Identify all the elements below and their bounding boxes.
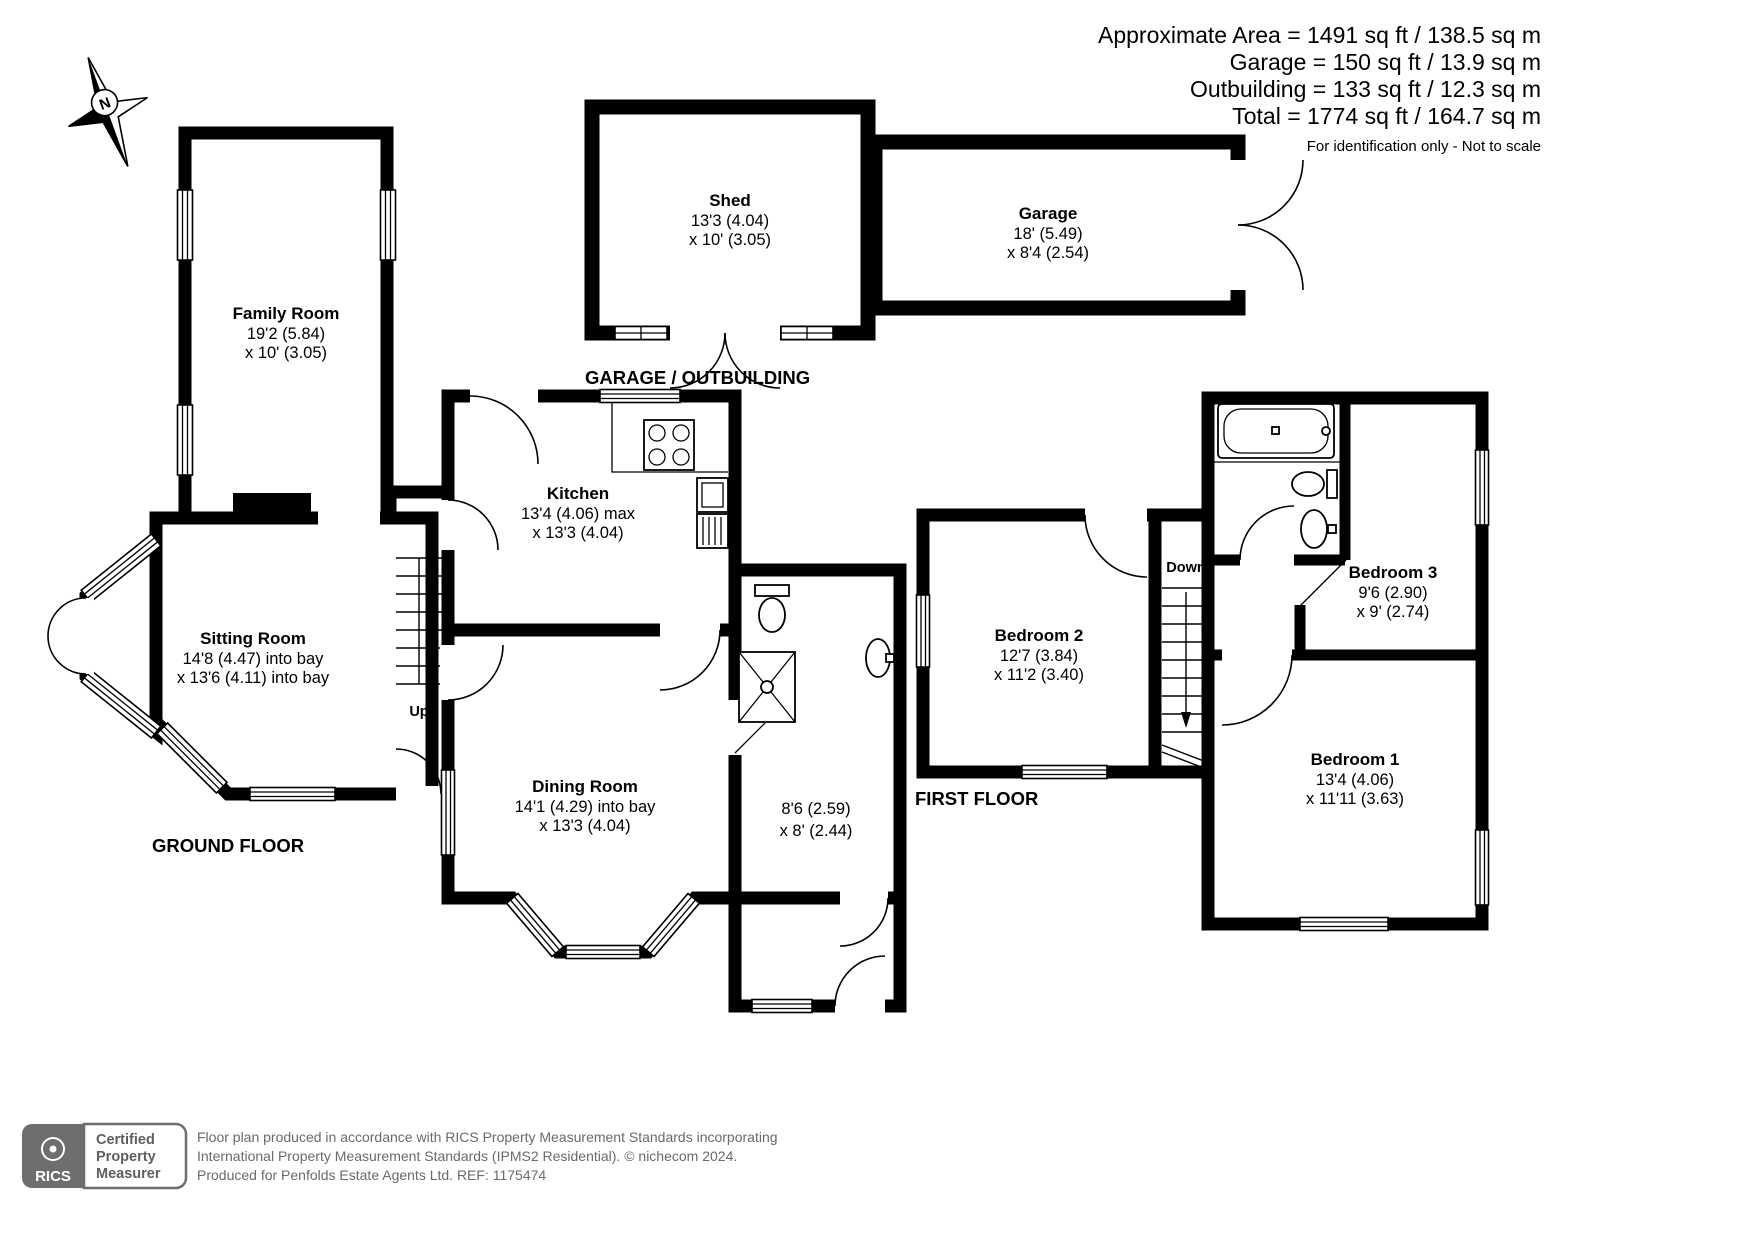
garage-dim1: 18' (5.49)	[1013, 225, 1082, 243]
sitting-bottom-window	[250, 788, 335, 801]
footer-disclaimer: Floor plan produced in accordance with R…	[197, 1129, 778, 1183]
sitting-bay-french-doors	[48, 598, 94, 674]
stairs-up-label: Up	[409, 704, 428, 720]
rics-logo: RICS	[22, 1124, 84, 1188]
bedroom1-bottom-window	[1300, 918, 1388, 931]
shed-dim2: x 10' (3.05)	[689, 231, 771, 249]
garage-name: Garage	[1019, 204, 1078, 223]
kitchen-top-window	[600, 390, 680, 403]
bathroom-gf-dim1: 8'6 (2.59)	[781, 800, 850, 818]
toilet-ff	[1292, 470, 1337, 498]
sitting-room-dim1: 14'8 (4.47) into bay	[183, 650, 324, 668]
first-floor-label: FIRST FLOOR	[915, 788, 1038, 809]
area-line-1: Approximate Area = 1491 sq ft / 138.5 sq…	[1098, 22, 1541, 48]
dining-room-name: Dining Room	[532, 777, 638, 796]
rics-logo-text: RICS	[35, 1168, 71, 1185]
shed-window-right	[781, 327, 833, 340]
bedroom3-dim1: 9'6 (2.90)	[1358, 584, 1427, 602]
kitchen-name: Kitchen	[547, 484, 609, 503]
family-room-window-right	[381, 190, 396, 260]
dining-bay-window-bottom	[566, 946, 640, 959]
family-room-name: Family Room	[233, 304, 340, 323]
shed-window-left	[615, 327, 667, 340]
bedroom3-dim2: x 9' (2.74)	[1357, 603, 1430, 621]
shed-name: Shed	[709, 191, 751, 210]
bedroom3-right-window	[1476, 450, 1489, 525]
kitchen-hob	[644, 420, 694, 470]
bathroom-gf-dim2: x 8' (2.44)	[780, 822, 853, 840]
shower-gf	[739, 652, 795, 722]
scale-note: For identification only - Not to scale	[1307, 138, 1541, 155]
area-line-3: Outbuilding = 133 sq ft / 12.3 sq m	[1190, 76, 1541, 102]
bedroom1-dim2: x 11'11 (3.63)	[1306, 790, 1404, 808]
garage-dim2: x 8'4 (2.54)	[1007, 244, 1089, 262]
family-room-window-left-top	[178, 190, 193, 260]
footer-line-2: International Property Measurement Stand…	[197, 1148, 737, 1164]
badge-line-2: Property	[96, 1149, 156, 1165]
dining-left-window	[442, 770, 455, 855]
chimney-breast	[233, 493, 311, 519]
bedroom2-bottom-window	[1022, 766, 1107, 779]
bedroom2-dim1: 12'7 (3.84)	[1000, 647, 1078, 665]
garage-double-door	[1229, 160, 1303, 290]
footer-line-3: Produced for Penfolds Estate Agents Ltd.…	[197, 1167, 546, 1183]
floor-plan-svg: N Approximate Area = 1491 sq ft / 138.5 …	[0, 0, 1755, 1241]
dining-room-dim2: x 13'3 (4.04)	[539, 817, 630, 835]
dining-room-dim1: 14'1 (4.29) into bay	[515, 798, 656, 816]
footer: RICS Certified Property Measurer Floor p…	[22, 1124, 778, 1188]
badge-line-1: Certified	[96, 1132, 155, 1148]
stairs-down-label: Down	[1166, 560, 1205, 576]
area-line-2: Garage = 150 sq ft / 13.9 sq m	[1230, 49, 1541, 75]
family-sitting-opening	[318, 505, 380, 527]
sitting-room-dim2: x 13'6 (4.11) into bay	[177, 669, 330, 687]
shed-dim1: 13'3 (4.04)	[691, 212, 769, 230]
sitting-room-name: Sitting Room	[200, 629, 306, 648]
bedroom2-name: Bedroom 2	[995, 626, 1084, 645]
bedroom1-name: Bedroom 1	[1311, 750, 1400, 769]
badge-line-3: Measurer	[96, 1166, 161, 1182]
certified-measurer-badge: Certified Property Measurer	[84, 1124, 186, 1188]
bedroom2-left-window	[917, 595, 930, 667]
kitchen-dim2: x 13'3 (4.04)	[532, 524, 623, 542]
area-line-4: Total = 1774 sq ft / 164.7 sq m	[1232, 103, 1541, 129]
family-room-dim1: 19'2 (5.84)	[247, 325, 325, 343]
bedroom3-name: Bedroom 3	[1349, 563, 1438, 582]
bedroom1-right-window	[1476, 830, 1489, 905]
first-floor-plan: Down	[915, 398, 1489, 931]
family-room-window-left-bottom	[178, 405, 193, 475]
bedroom2-dim2: x 11'2 (3.40)	[994, 666, 1084, 684]
bedroom1-dim1: 13'4 (4.06)	[1316, 771, 1394, 789]
porch-window	[752, 1000, 812, 1013]
family-room-dim2: x 10' (3.05)	[245, 344, 327, 362]
garage-outbuilding-label: GARAGE / OUTBUILDING	[585, 367, 810, 388]
ground-floor-label: GROUND FLOOR	[152, 835, 304, 856]
footer-line-1: Floor plan produced in accordance with R…	[197, 1129, 778, 1145]
porch-walls	[735, 898, 900, 1006]
outbuilding-plan: Shed 13'3 (4.04) x 10' (3.05) Garage 18'…	[585, 107, 1303, 388]
compass-north-arrow: N	[49, 43, 168, 181]
kitchen-dim1: 13'4 (4.06) max	[521, 505, 636, 523]
bathtub-ff	[1214, 404, 1340, 462]
